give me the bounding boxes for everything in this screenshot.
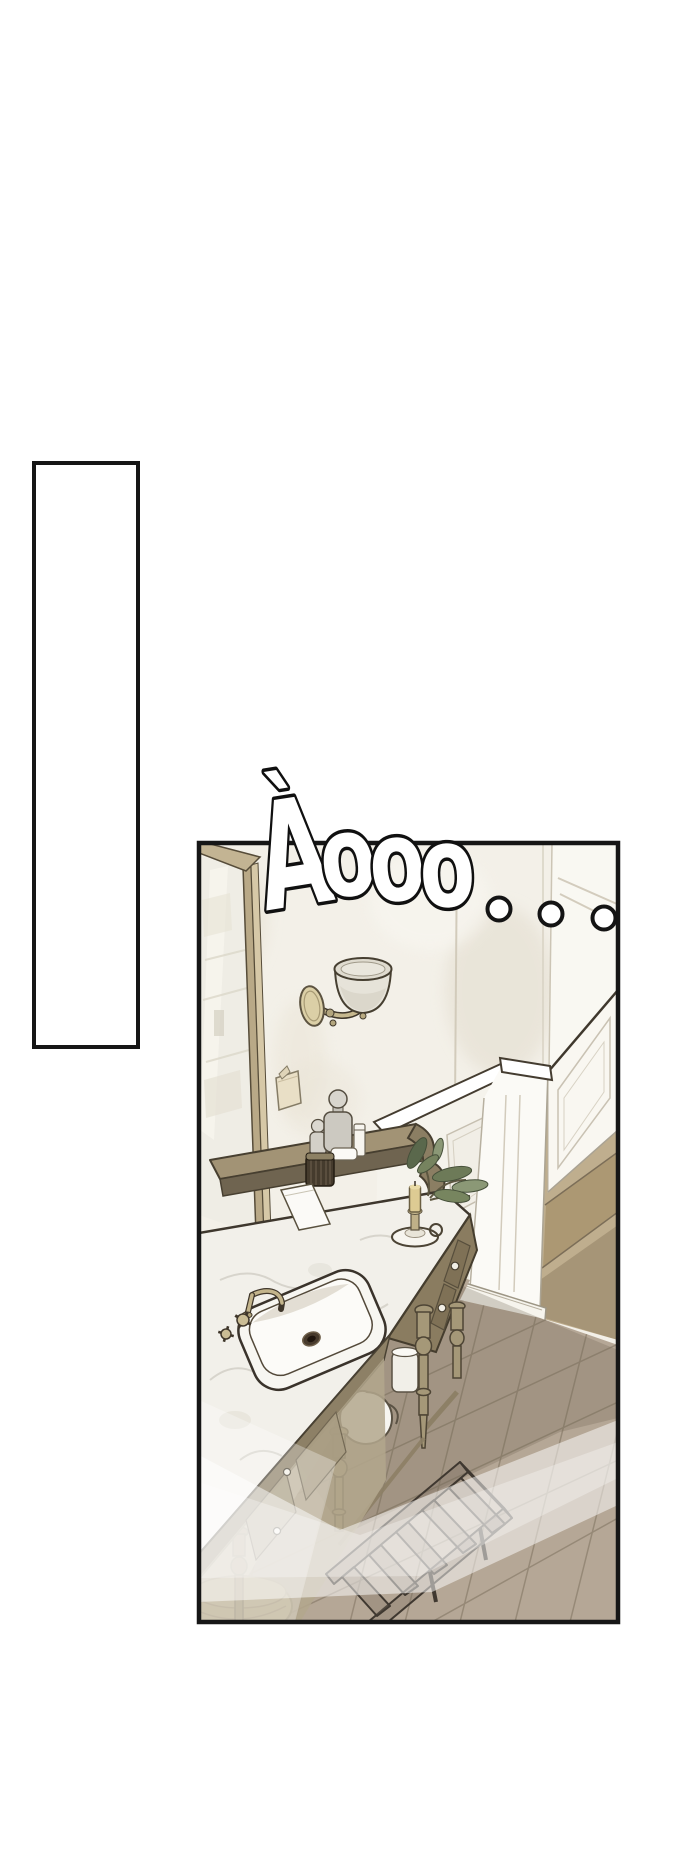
sfx-letter-o3: o (416, 801, 478, 935)
comic-page: À o o o (0, 0, 700, 1865)
wall-note (276, 1066, 301, 1110)
empty-speech-bubble (34, 463, 138, 1047)
